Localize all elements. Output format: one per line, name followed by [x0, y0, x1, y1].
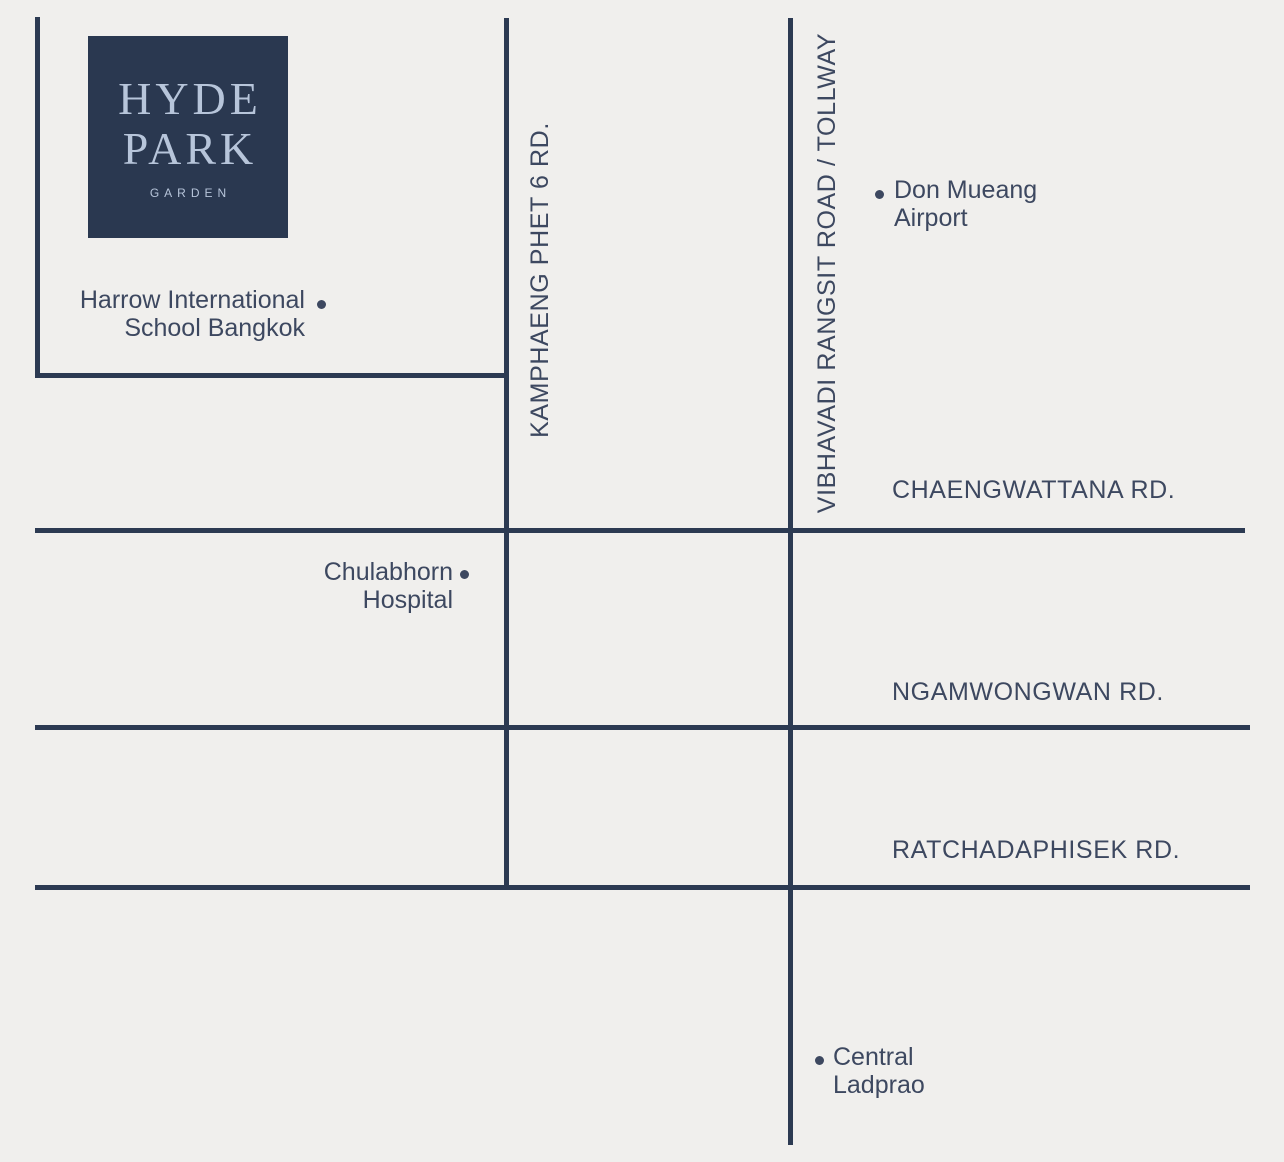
road-label-chaengwattana: CHAENGWATTANA RD.: [892, 476, 1175, 504]
road-line-left-spur: [35, 17, 40, 378]
road-label-vibhavadi-rangsit-tollway: VIBHAVADI RANGSIT ROAD / TOLLWAY: [813, 33, 841, 513]
don-mueang-marker-dot-icon: [875, 190, 884, 199]
road-line-ratchadaphisek: [35, 885, 1250, 890]
landmark-chulabhorn-line2: Hospital: [324, 586, 453, 614]
road-line-ngamwongwan: [35, 725, 1250, 730]
landmark-chulabhorn-line1: Chulabhorn: [324, 558, 453, 586]
logo-title-line2: PARK: [119, 124, 257, 174]
road-line-kamphaeng-phet-6: [504, 18, 509, 890]
road-label-kamphaeng-phet-6: KAMPHAENG PHET 6 RD.: [526, 122, 554, 438]
road-line-vibhavadi-rangsit: [788, 18, 793, 1145]
landmark-label-central-ladprao: Central Ladprao: [833, 1043, 925, 1099]
road-line-connector: [35, 373, 509, 378]
logo-subtitle: GARDEN: [145, 186, 231, 200]
landmark-central-ladprao-line2: Ladprao: [833, 1071, 925, 1099]
central-ladprao-marker-dot-icon: [815, 1056, 824, 1065]
hyde-park-garden-logo: HYDE PARK GARDEN: [88, 36, 288, 238]
landmark-harrow-line1: Harrow International: [80, 286, 305, 314]
landmark-label-don-mueang-airport: Don Mueang Airport: [894, 176, 1037, 232]
harrow-marker-dot-icon: [317, 300, 326, 309]
landmark-don-mueang-line2: Airport: [894, 204, 1037, 232]
road-label-ratchadaphisek: RATCHADAPHISEK RD.: [892, 836, 1180, 864]
road-label-ngamwongwan: NGAMWONGWAN RD.: [892, 678, 1164, 706]
landmark-don-mueang-line1: Don Mueang: [894, 176, 1037, 204]
chulabhorn-marker-dot-icon: [460, 570, 469, 579]
landmark-label-chulabhorn-hospital: Chulabhorn Hospital: [324, 558, 453, 614]
map-canvas: HYDE PARK GARDEN KAMPHAENG PHET 6 RD. VI…: [0, 0, 1284, 1162]
landmark-central-ladprao-line1: Central: [833, 1043, 925, 1071]
logo-title-line1: HYDE: [114, 74, 262, 124]
landmark-harrow-line2: School Bangkok: [80, 314, 305, 342]
landmark-label-harrow-international-school: Harrow International School Bangkok: [80, 286, 305, 342]
road-line-chaengwattana: [35, 528, 1245, 533]
